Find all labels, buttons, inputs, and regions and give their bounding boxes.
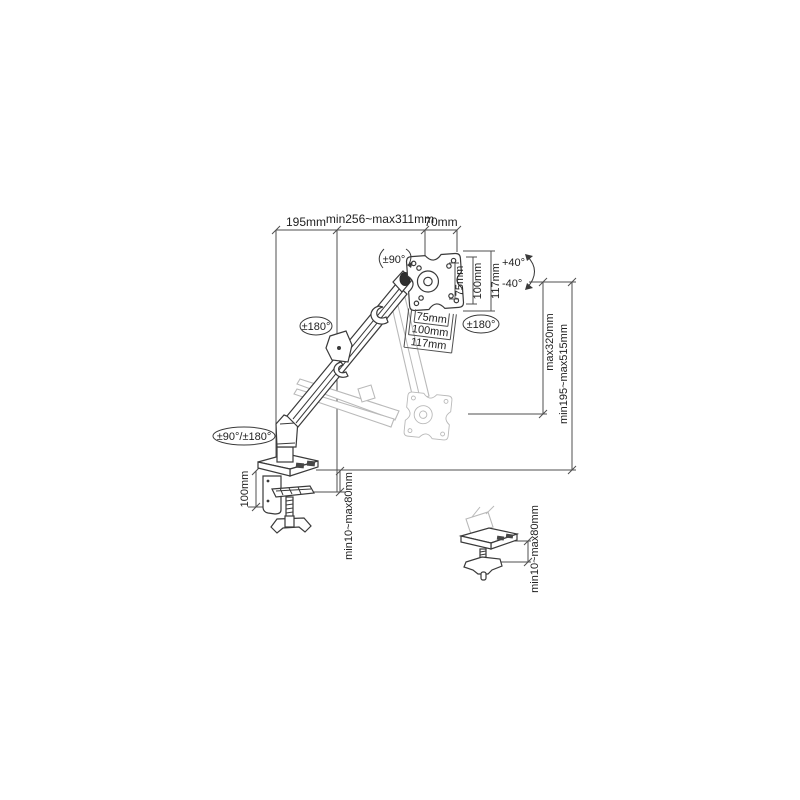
angle-head-rotation-label: ±180° xyxy=(467,319,496,331)
dim-arm-offset-label: 195mm xyxy=(286,215,326,229)
height-max-label: max320mm xyxy=(544,313,556,370)
angle-head-swivel-label: ±90° xyxy=(383,254,406,266)
angle-arm-rotation-label: ±180° xyxy=(302,321,331,333)
tilt-arc xyxy=(527,256,535,288)
tilt-arrow-down xyxy=(525,283,533,290)
angle-tilt-down-label: -40° xyxy=(502,278,522,290)
grommet-thickness-label: min10~max80mm xyxy=(529,505,541,593)
grommet-mount-detail xyxy=(461,506,517,580)
angle-base-rotation-label: ±90°/±180° xyxy=(217,431,272,443)
desk-clamp xyxy=(258,454,318,533)
vesa-v117-label: 117mm xyxy=(490,263,502,299)
clamp-height-label: 100mm xyxy=(239,471,251,508)
vesa-v75-label: 75mm xyxy=(454,266,466,297)
diagram-svg: 195mm min256~max311mm 70mm ±90° ±180° ±1… xyxy=(0,0,800,800)
clamp-thickness-label: min10~max80mm xyxy=(343,472,355,560)
monitor-arm-dimension-diagram: 195mm min256~max311mm 70mm ±90° ±180° ±1… xyxy=(0,0,800,800)
dim-head-depth-label: 70mm xyxy=(424,215,457,229)
height-range-label: min195~max515mm xyxy=(558,324,570,424)
vesa-v100-label: 100mm xyxy=(472,263,484,300)
ghost-vesa-plate xyxy=(404,392,453,441)
angle-tilt-up-label: +40° xyxy=(502,257,525,269)
dim-arm-reach-label: min256~max311mm xyxy=(326,212,434,226)
tilt-arrow-up xyxy=(525,254,533,261)
